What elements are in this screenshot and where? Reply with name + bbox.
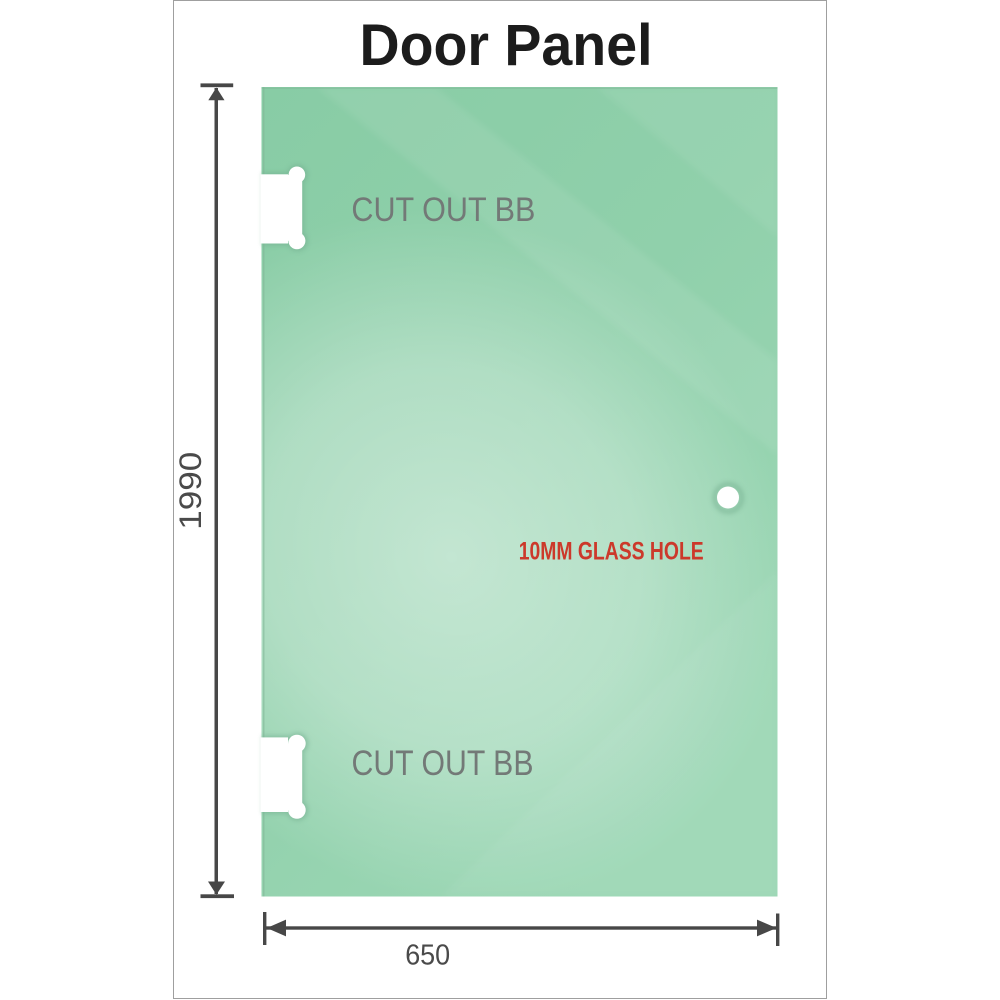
svg-text:CUT OUT BB: CUT OUT BB <box>352 744 534 783</box>
svg-text:Door Panel: Door Panel <box>360 13 653 78</box>
svg-text:1990: 1990 <box>172 452 208 530</box>
svg-text:10MM GLASS HOLE: 10MM GLASS HOLE <box>519 538 704 566</box>
svg-text:CUT OUT BB: CUT OUT BB <box>351 191 535 229</box>
svg-text:650: 650 <box>405 940 450 972</box>
